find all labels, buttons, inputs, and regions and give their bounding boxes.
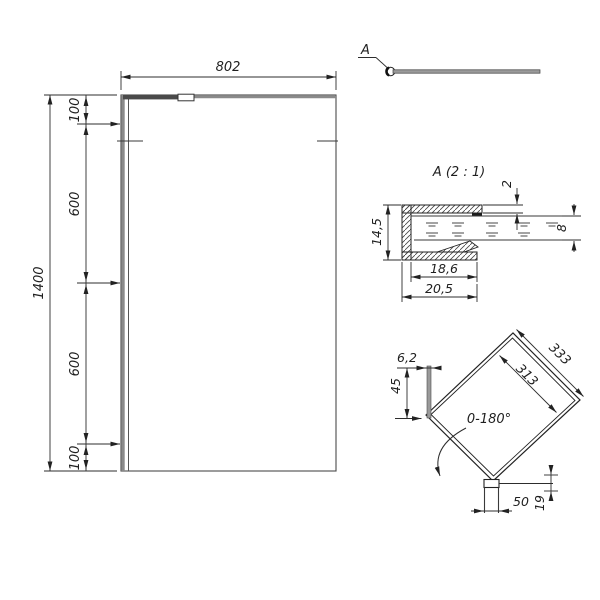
dim-inner-depth: 18,6 — [411, 261, 477, 282]
dim-clamp-height: 19 — [532, 465, 558, 511]
dim-label-plate-width: 6,2 — [397, 350, 417, 365]
dim-plate-offset: 45 — [388, 368, 422, 419]
profile-bottom-flange — [402, 252, 477, 260]
dim-profile-height: 14,5 — [369, 205, 401, 260]
dim-width: 802 — [121, 60, 336, 90]
dim-label-cover-thickness: 2 — [499, 180, 514, 188]
dim-label-glass-thickness: 8 — [554, 224, 569, 232]
glass-material-marks — [426, 223, 558, 236]
dim-glass-thickness: 8 — [554, 204, 581, 252]
technical-drawing-page: 802 1400 100 600 6 — [0, 0, 600, 600]
dim-label-seg-1: 100 — [68, 98, 83, 123]
dim-label-seg-3: 600 — [68, 352, 83, 377]
detail-a-view: A (2 : 1) 14,5 — [369, 165, 581, 302]
detail-callout: A — [358, 43, 540, 76]
wall-plate — [427, 366, 431, 418]
callout-label: A — [360, 43, 370, 58]
dim-label-plate-offset: 45 — [388, 378, 403, 394]
bar-connector — [178, 94, 194, 101]
dim-plate-width: 6,2 — [397, 350, 441, 368]
dim-label-width: 802 — [216, 60, 241, 75]
dim-label-profile-height: 14,5 — [369, 218, 384, 246]
retaining-lip — [472, 213, 482, 216]
dim-label-inner-depth: 18,6 — [430, 261, 458, 276]
swing-angle-label: 0-180° — [467, 412, 511, 427]
dim-label-outer-length: 333 — [545, 340, 573, 368]
dim-label-seg-4: 100 — [68, 446, 83, 471]
gasket-wedge — [437, 241, 478, 252]
profile-top-flange — [402, 205, 482, 213]
front-view: 802 1400 100 600 6 — [32, 60, 338, 471]
technical-drawing: 802 1400 100 600 6 — [0, 0, 600, 600]
bar-swing-detail: 333 313 6,2 45 0-180° — [388, 330, 584, 514]
callout-circle-thick-arc — [387, 68, 389, 76]
dim-cover-thickness: 2 — [483, 180, 523, 230]
detail-a-title: A (2 : 1) — [432, 165, 485, 180]
dim-clamp-width: 50 — [471, 494, 529, 511]
dim-label-height: 1400 — [32, 266, 47, 299]
dim-label-outer-depth: 20,5 — [425, 281, 453, 296]
dim-label-clamp-width: 50 — [513, 494, 529, 509]
dim-label-seg-2: 600 — [68, 192, 83, 217]
stabilizer-bar-front — [123, 95, 179, 100]
stabilizer-bar-side — [393, 70, 540, 73]
dim-label-clamp-height: 19 — [532, 495, 547, 511]
dim-segments: 100 600 600 100 — [68, 95, 120, 471]
glass-panel — [121, 95, 336, 471]
